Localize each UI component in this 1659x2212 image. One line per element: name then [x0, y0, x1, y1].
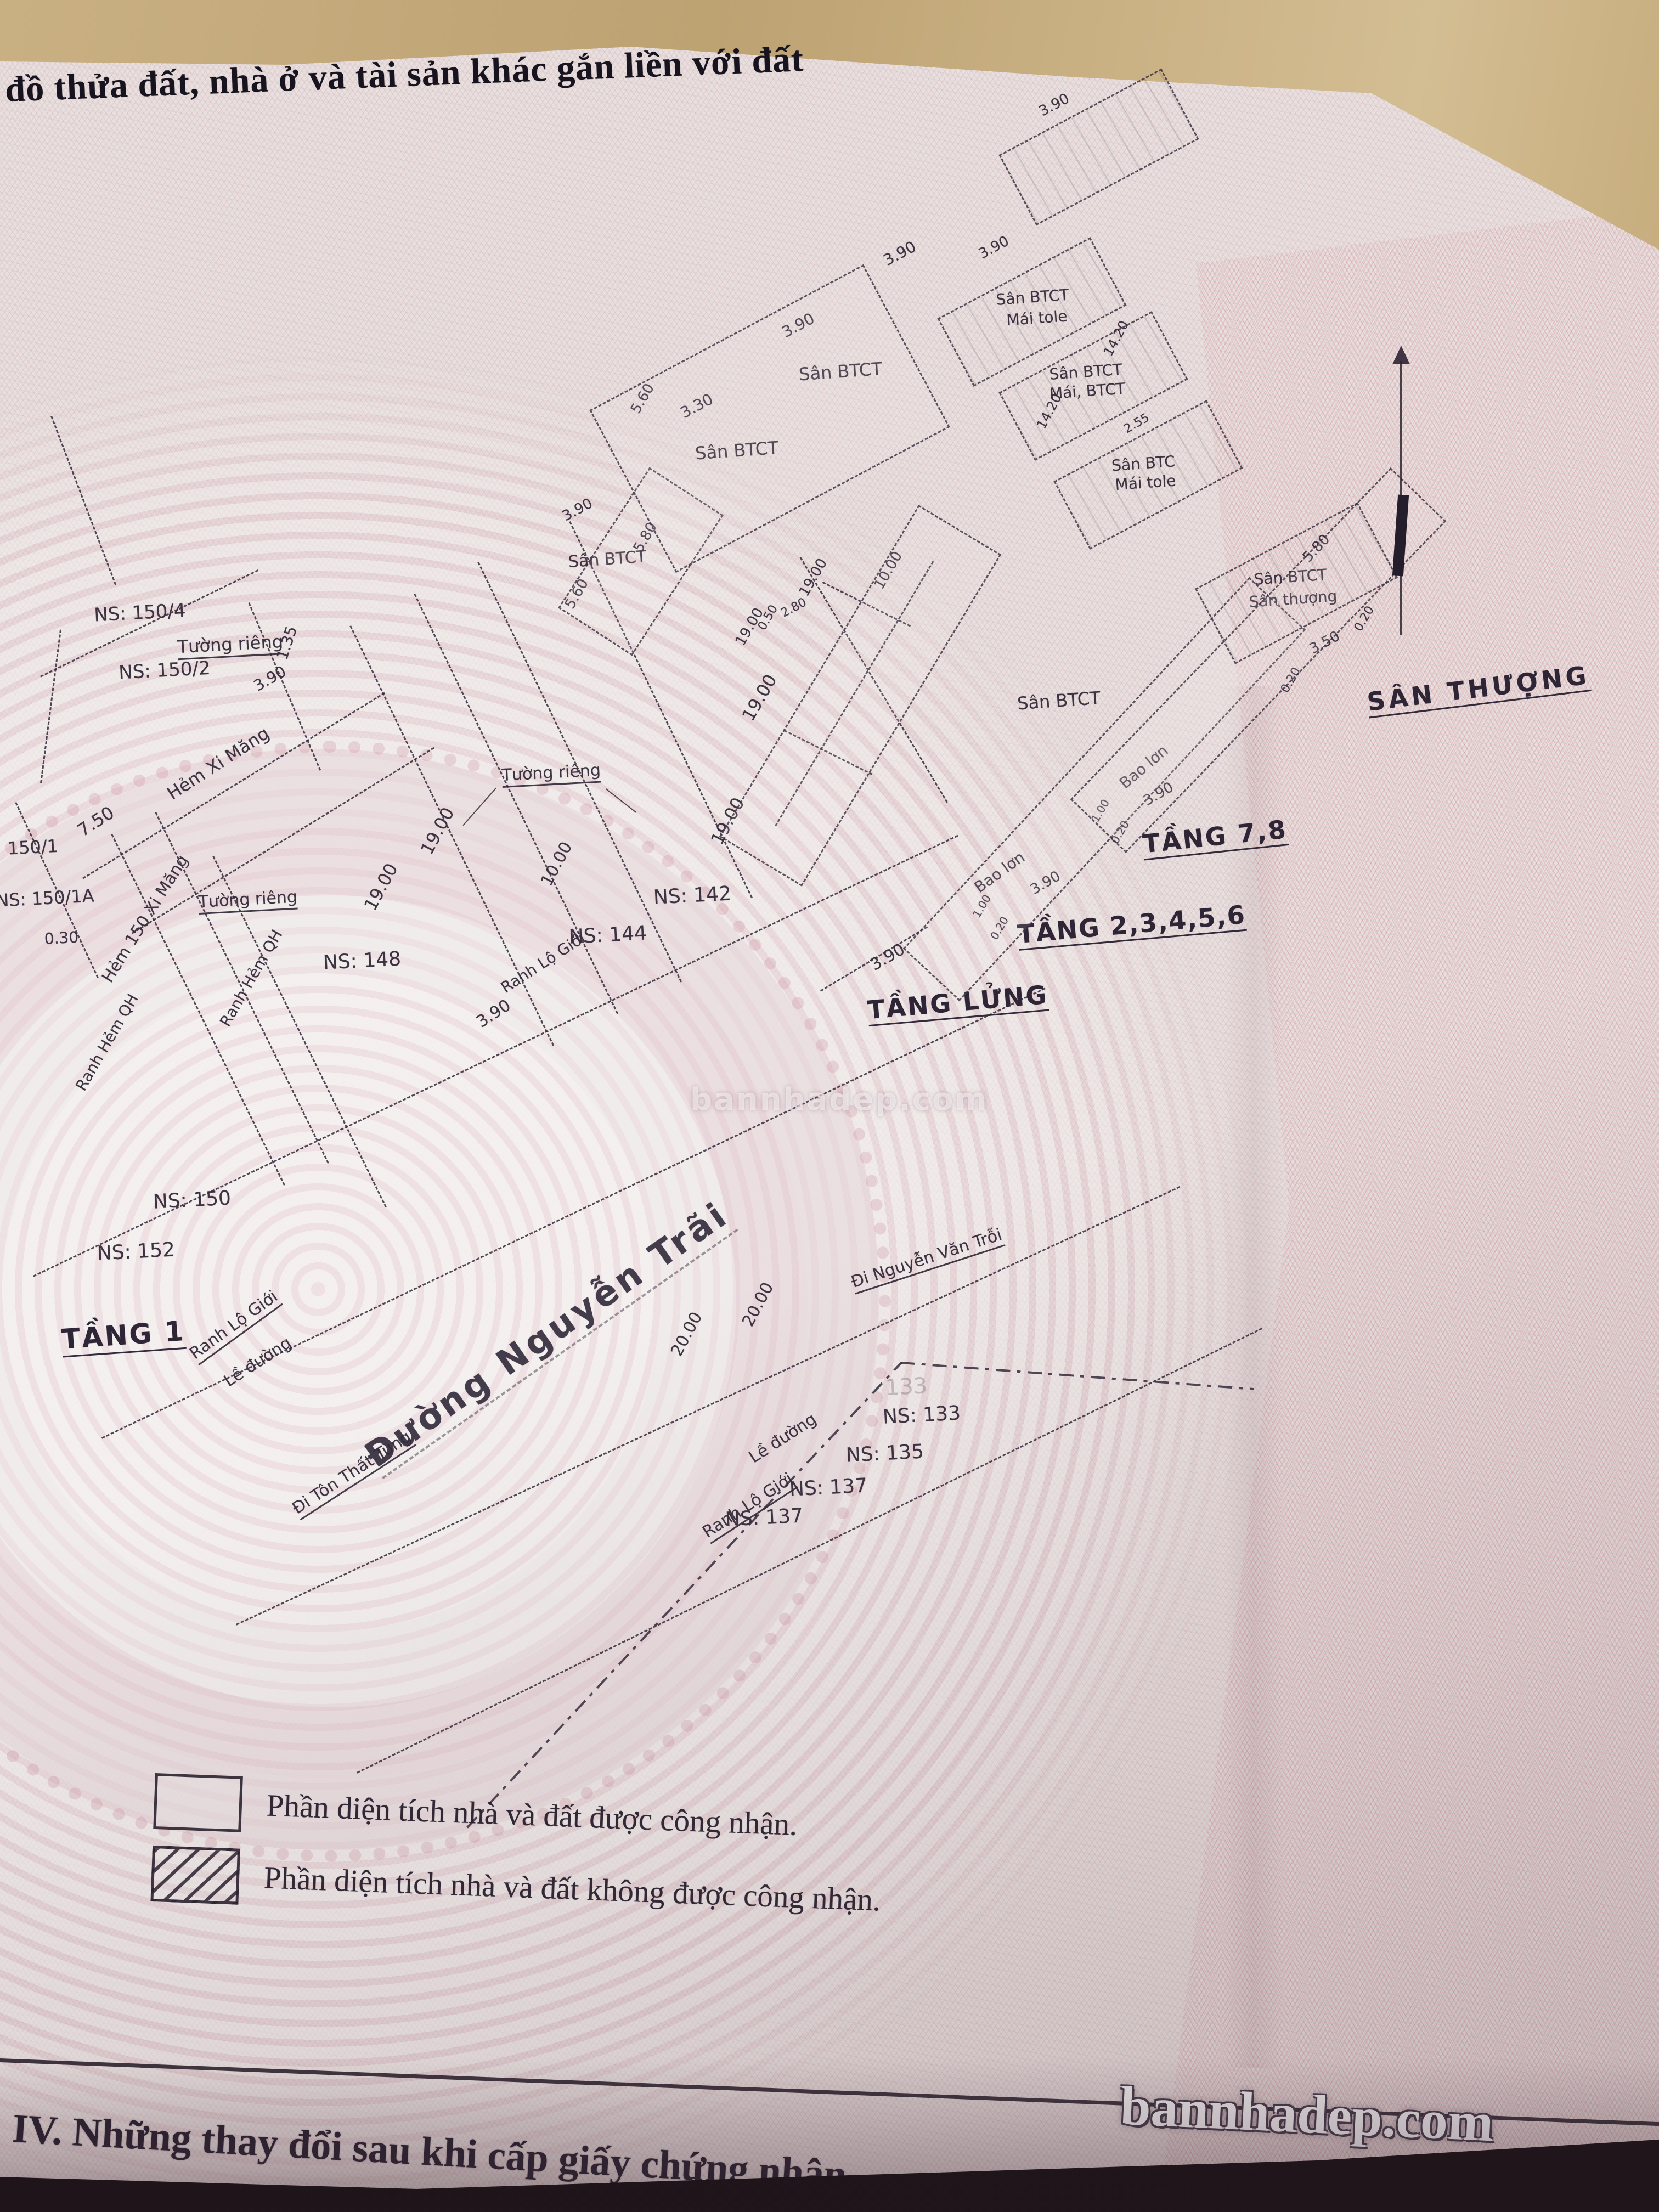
map-label: TẦNG 1	[60, 1317, 186, 1357]
map-label: 2.80	[779, 596, 809, 619]
map-label: 3.90	[881, 238, 919, 268]
north-arrow-blade	[1392, 494, 1409, 576]
map-label: Ranh Hẻm QH	[217, 927, 285, 1029]
plan-outline	[998, 69, 1199, 226]
map-label: Sân BTCT	[1017, 689, 1101, 713]
map-line	[33, 835, 958, 1277]
map-label: Tường riêng	[198, 889, 298, 915]
map-line	[40, 630, 61, 783]
map-label: 19.00	[740, 672, 781, 724]
map-label: 3.90	[251, 663, 289, 695]
legend-swatch-empty	[153, 1773, 243, 1832]
legend-label-not-recognized: Phần diện tích nhà và đất không được côn…	[263, 1860, 881, 1918]
legend-swatch-hatched	[150, 1846, 240, 1905]
map-label: 3.90	[473, 997, 513, 1031]
map-label: 0.50	[756, 603, 780, 633]
map-label: 3.90	[1037, 91, 1072, 119]
certificate-photo-page: đồ thửa đất, nhà ở và tài sản khác gắn l…	[0, 0, 1659, 2212]
map-label: Ranh Hẻm QH	[73, 991, 141, 1093]
map-line	[236, 1186, 1180, 1626]
map-label: NS: 142	[653, 883, 732, 908]
legend-label-recognized: Phần diện tích nhà và đất được công nhận…	[266, 1787, 798, 1842]
map-label: 3.90	[977, 234, 1012, 262]
map-label: 1.35	[274, 624, 300, 662]
map-label: 3.90	[867, 941, 908, 974]
map-label: NS: 148	[323, 949, 402, 973]
map-label: 133	[885, 1374, 928, 1400]
map-label: TẦNG 2,3,4,5,6	[1017, 901, 1247, 951]
map-label: NS: 137	[789, 1475, 868, 1500]
map-line	[101, 988, 1046, 1439]
map-line	[606, 788, 636, 813]
map-label: 0.30	[44, 929, 79, 947]
map-label: Đi Tôn Thất Tùng	[290, 1428, 416, 1520]
legend-row-not-recognized: Phần diện tích nhà và đất không được côn…	[150, 1846, 882, 1928]
map-line	[901, 1362, 1254, 1390]
map-label: NS: 150/2	[119, 659, 211, 683]
map-label: Lề đường	[746, 1410, 820, 1466]
map-line	[212, 856, 387, 1207]
map-label: NS: 150/1A	[0, 887, 94, 911]
map-label: NS: 152	[97, 1239, 176, 1264]
map-label: NS: 133	[882, 1403, 961, 1427]
legend: Phần diện tích nhà và đất được công nhận…	[150, 1773, 884, 1945]
map-line	[82, 692, 385, 879]
north-arrow-icon	[1388, 346, 1415, 642]
map-line	[111, 834, 285, 1186]
map-line	[820, 926, 928, 992]
map-label: 19.00	[362, 861, 402, 914]
map-label: 3.90	[560, 496, 595, 524]
map-line	[466, 1509, 764, 1829]
map-label: NS: 135	[845, 1441, 924, 1466]
map-label: 20.00	[740, 1280, 777, 1330]
watermark-center: bannhadep.com	[690, 1082, 989, 1118]
map-line	[349, 625, 554, 1046]
map-label: Ranh Lộ Giới	[498, 930, 588, 996]
map-label: NS: 150/4	[94, 601, 187, 625]
map-label: Hẻm 150 Xi Măng	[99, 852, 191, 985]
map-label: Đi Nguyễn Văn Trỗi	[849, 1226, 1005, 1294]
map-line	[50, 416, 116, 585]
map-line	[463, 788, 496, 826]
map-label: TẦNG 7,8	[1142, 816, 1289, 861]
map-label: SÂN THƯỢNG	[1365, 662, 1592, 719]
map-line	[414, 594, 618, 1014]
map-label: Hẻm Xi Măng	[164, 724, 273, 804]
map-label: 20.00	[668, 1310, 706, 1359]
map-label: 19.00	[418, 805, 458, 858]
